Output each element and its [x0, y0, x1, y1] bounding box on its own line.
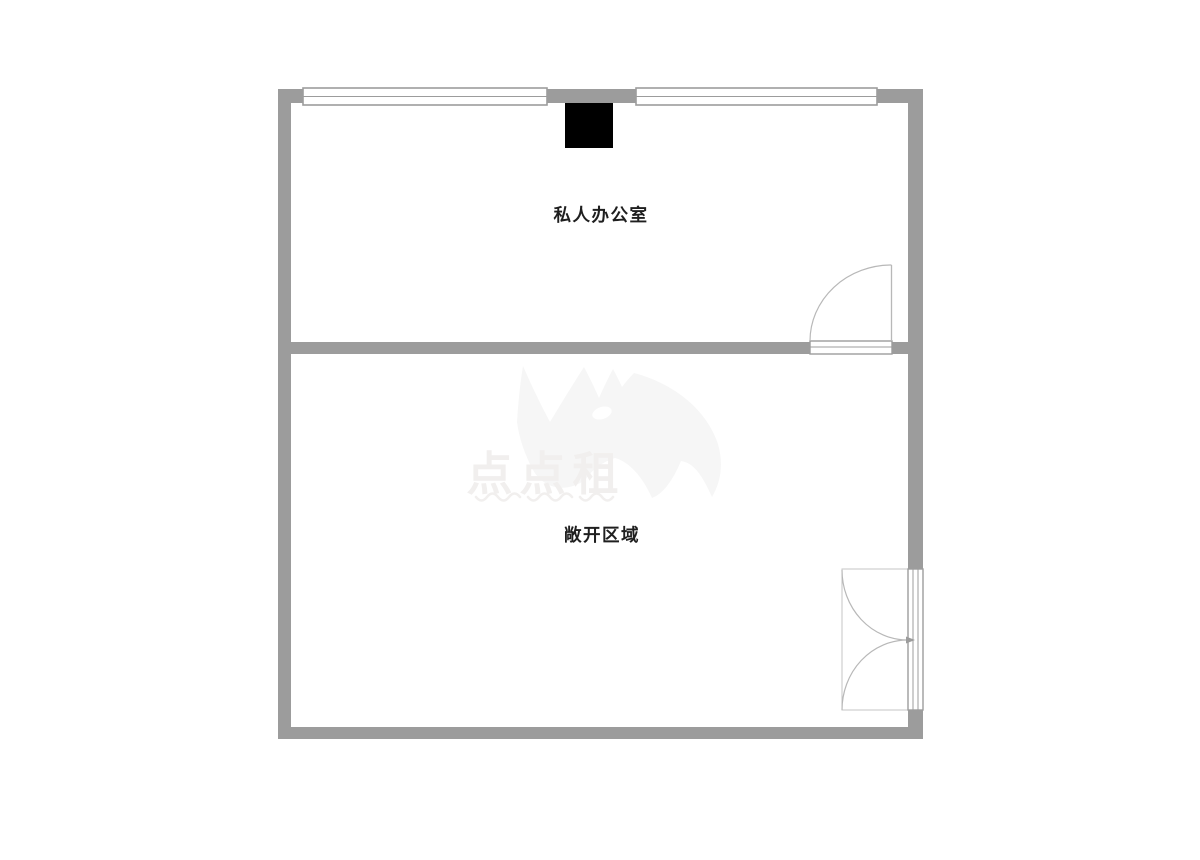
room-label-private-office: 私人办公室 — [554, 205, 649, 226]
left-wall — [278, 89, 291, 739]
entrance-double-door — [842, 569, 923, 710]
floorplan-drawing: 点点租 — [0, 0, 1200, 860]
room-label-open-area: 敞开区域 — [564, 525, 640, 546]
office-door-swing-arc — [810, 265, 892, 341]
floorplan: 点点租 — [0, 0, 1200, 860]
structural-column — [565, 103, 613, 148]
window-2 — [636, 88, 877, 105]
bottom-wall — [278, 727, 923, 739]
office-door — [810, 265, 892, 354]
window-1 — [303, 88, 547, 105]
watermark: 点点租 — [467, 366, 721, 501]
